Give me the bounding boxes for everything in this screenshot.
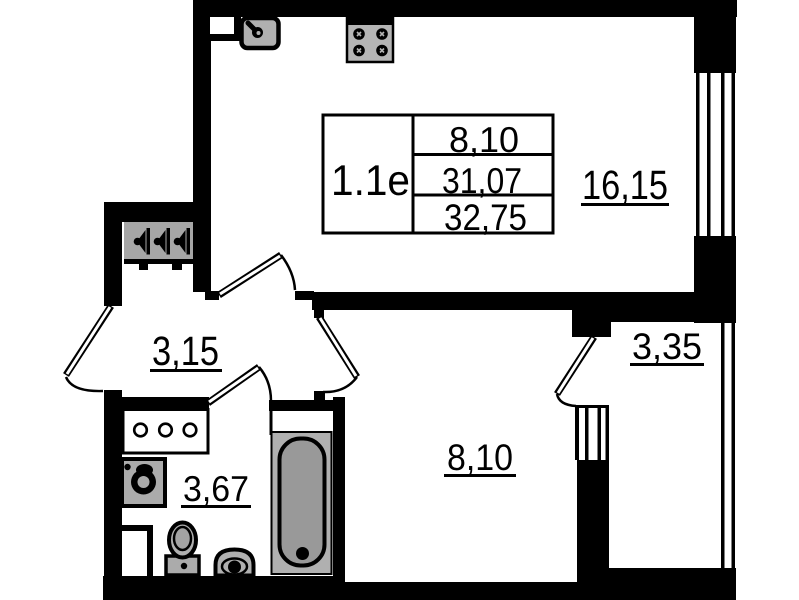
svg-text:8,10: 8,10	[447, 437, 513, 478]
svg-text:3,67: 3,67	[183, 468, 249, 509]
svg-text:3,35: 3,35	[632, 326, 702, 367]
svg-text:32,75: 32,75	[444, 197, 527, 238]
svg-text:3,15: 3,15	[152, 328, 219, 374]
svg-text:31,07: 31,07	[442, 160, 522, 201]
svg-text:1.1e: 1.1e	[331, 157, 410, 205]
svg-text:8,10: 8,10	[449, 119, 519, 160]
svg-text:16,15: 16,15	[582, 162, 668, 208]
